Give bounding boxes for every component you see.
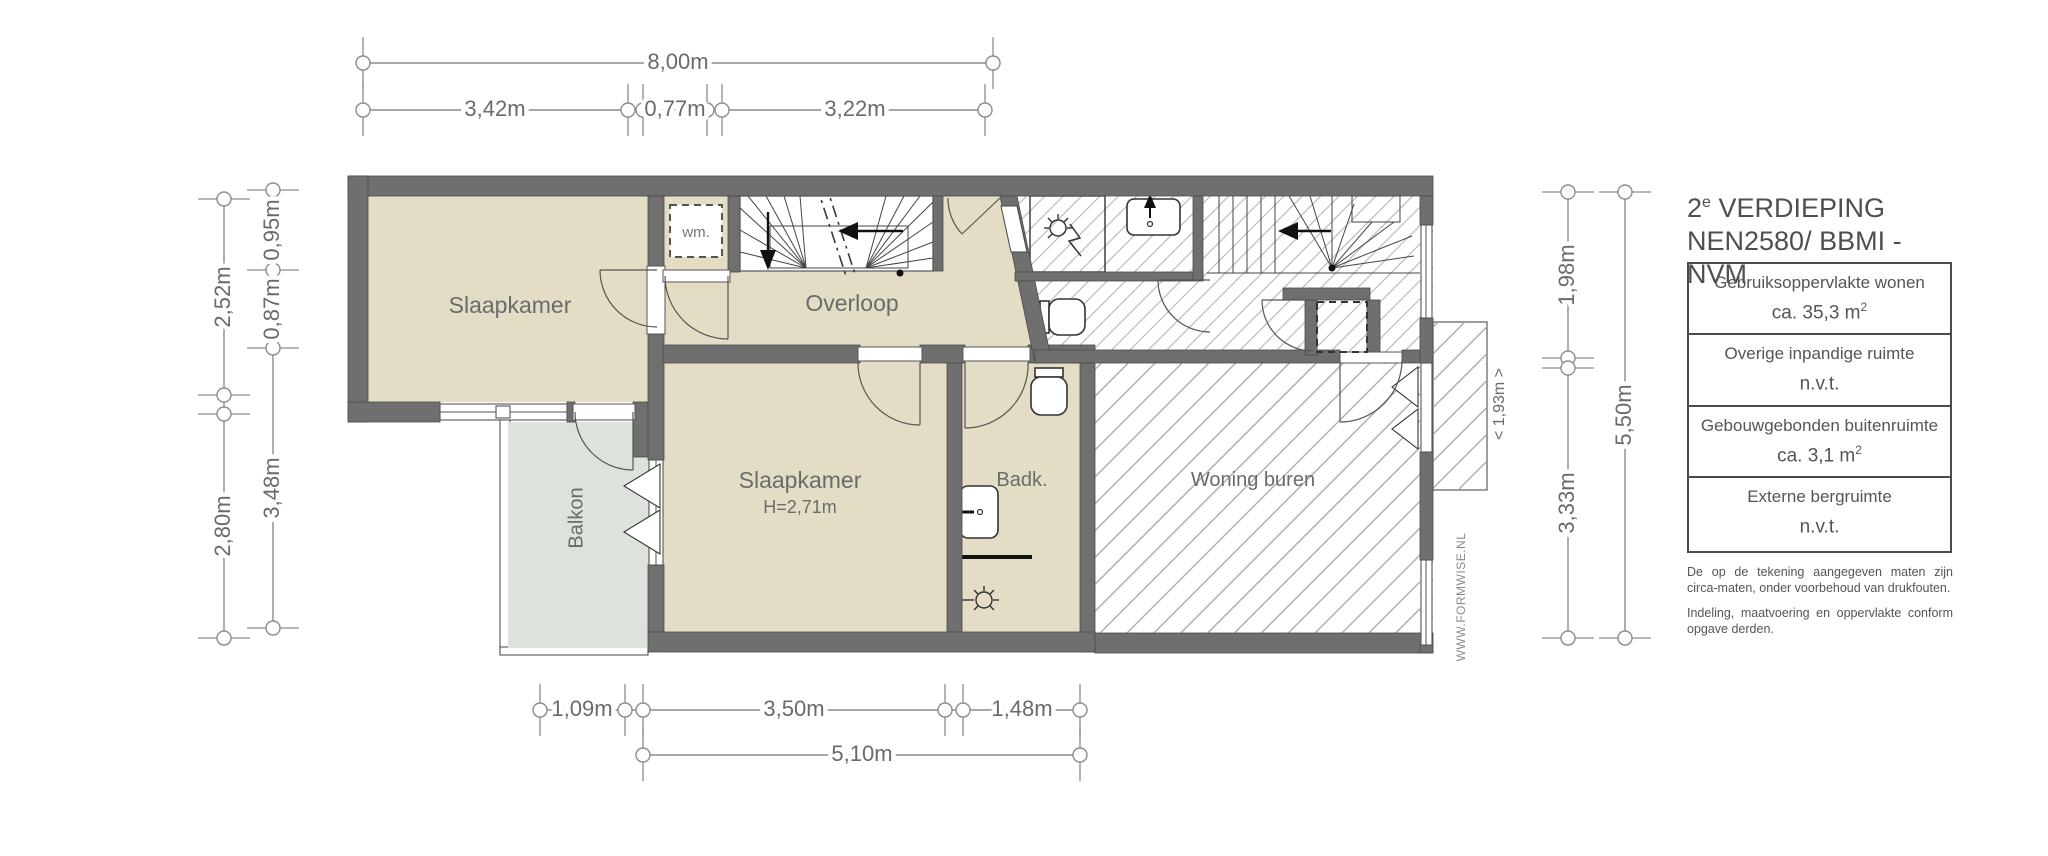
landing-label: Overloop [805, 290, 898, 316]
dim-left-inner-1: 0,95m [259, 199, 284, 260]
dim-left-inner-3: 3,48m [259, 457, 284, 518]
legend-value: ca. 3,1 m2 [1777, 443, 1862, 467]
dim-right-outer: 5,50m [1611, 384, 1636, 445]
dim-left-outer-2: 2,80m [210, 495, 235, 556]
legend-label: Gebruiksoppervlakte wonen [1714, 273, 1925, 293]
washer-label: wm. [681, 224, 710, 241]
balcony-label: Balkon [565, 487, 587, 548]
legend-row: Externe bergruimte n.v.t. [1689, 476, 1950, 547]
dim-top-3: 3,22m [824, 96, 885, 121]
dim-left-inner-2: 0,87m [259, 278, 284, 339]
legend-label: Externe bergruimte [1747, 487, 1892, 507]
dim-right-inner-1: 1,98m [1554, 244, 1579, 305]
legend-row: Gebouwgebonden buitenruimte ca. 3,1 m2 [1689, 405, 1950, 476]
dim-left-outer-1: 2,52m [210, 266, 235, 327]
sink-neighbor [1127, 194, 1180, 235]
dim-right-inner-2: 3,33m [1554, 472, 1579, 533]
legend-label: Gebouwgebonden buitenruimte [1701, 416, 1938, 436]
window-bedroom1 [440, 404, 567, 420]
legend-table: Gebruiksoppervlakte wonen ca. 35,3 m2 Ov… [1687, 262, 1952, 553]
bedroom1-label: Slaapkamer [449, 292, 572, 318]
neighbor-balcony [1433, 322, 1487, 490]
legend-value: n.v.t. [1800, 371, 1840, 395]
bedroom2-label: Slaapkamer [739, 467, 862, 493]
toilet-bathroom [1031, 368, 1067, 415]
legend-row: Overige inpandige ruimte n.v.t. [1689, 333, 1950, 405]
dim-bottom-2: 3,50m [763, 696, 824, 721]
toilet-neighbor [1040, 299, 1085, 335]
dim-bottom-3: 1,48m [991, 696, 1052, 721]
legend-value: ca. 35,3 m2 [1772, 300, 1867, 324]
sink-bathroom [960, 486, 998, 538]
disclaimer-p2: Indeling, maatvoering en oppervlakte con… [1687, 605, 1953, 637]
balcony-railing-bottom [500, 647, 648, 655]
bathroom-label: Badk. [996, 469, 1047, 491]
dim-top-1: 3,42m [464, 96, 525, 121]
dim-top-total: 8,00m [647, 49, 708, 74]
page-title: 2e VERDIEPING [1687, 186, 1967, 225]
disclaimer: De op de tekening aangegeven maten zijn … [1687, 564, 1953, 646]
legend-value: n.v.t. [1800, 514, 1840, 538]
window-neighbor-right-1 [1421, 225, 1432, 318]
disclaimer-p1: De op de tekening aangegeven maten zijn … [1687, 564, 1953, 596]
dim-bottom-1: 1,09m [551, 696, 612, 721]
window-neighbor-right-3 [1421, 560, 1432, 645]
neighbor-balcony-width-label: < 1,93m > [1491, 368, 1508, 440]
neighbor-label: Woning buren [1191, 469, 1315, 491]
legend-label: Overige inpandige ruimte [1725, 344, 1915, 364]
bedroom2-height-label: H=2,71m [763, 497, 837, 517]
formwise-watermark: WWW.FORMWISE.NL [1454, 533, 1468, 662]
dim-bottom-total: 5,10m [831, 741, 892, 766]
dim-top-2: 0,77m [644, 96, 705, 121]
legend-row: Gebruiksoppervlakte wonen ca. 35,3 m2 [1689, 264, 1950, 333]
floorplan-page: Slaapkamer wm. Overloop Slaapkamer H=2,7… [0, 0, 2048, 856]
